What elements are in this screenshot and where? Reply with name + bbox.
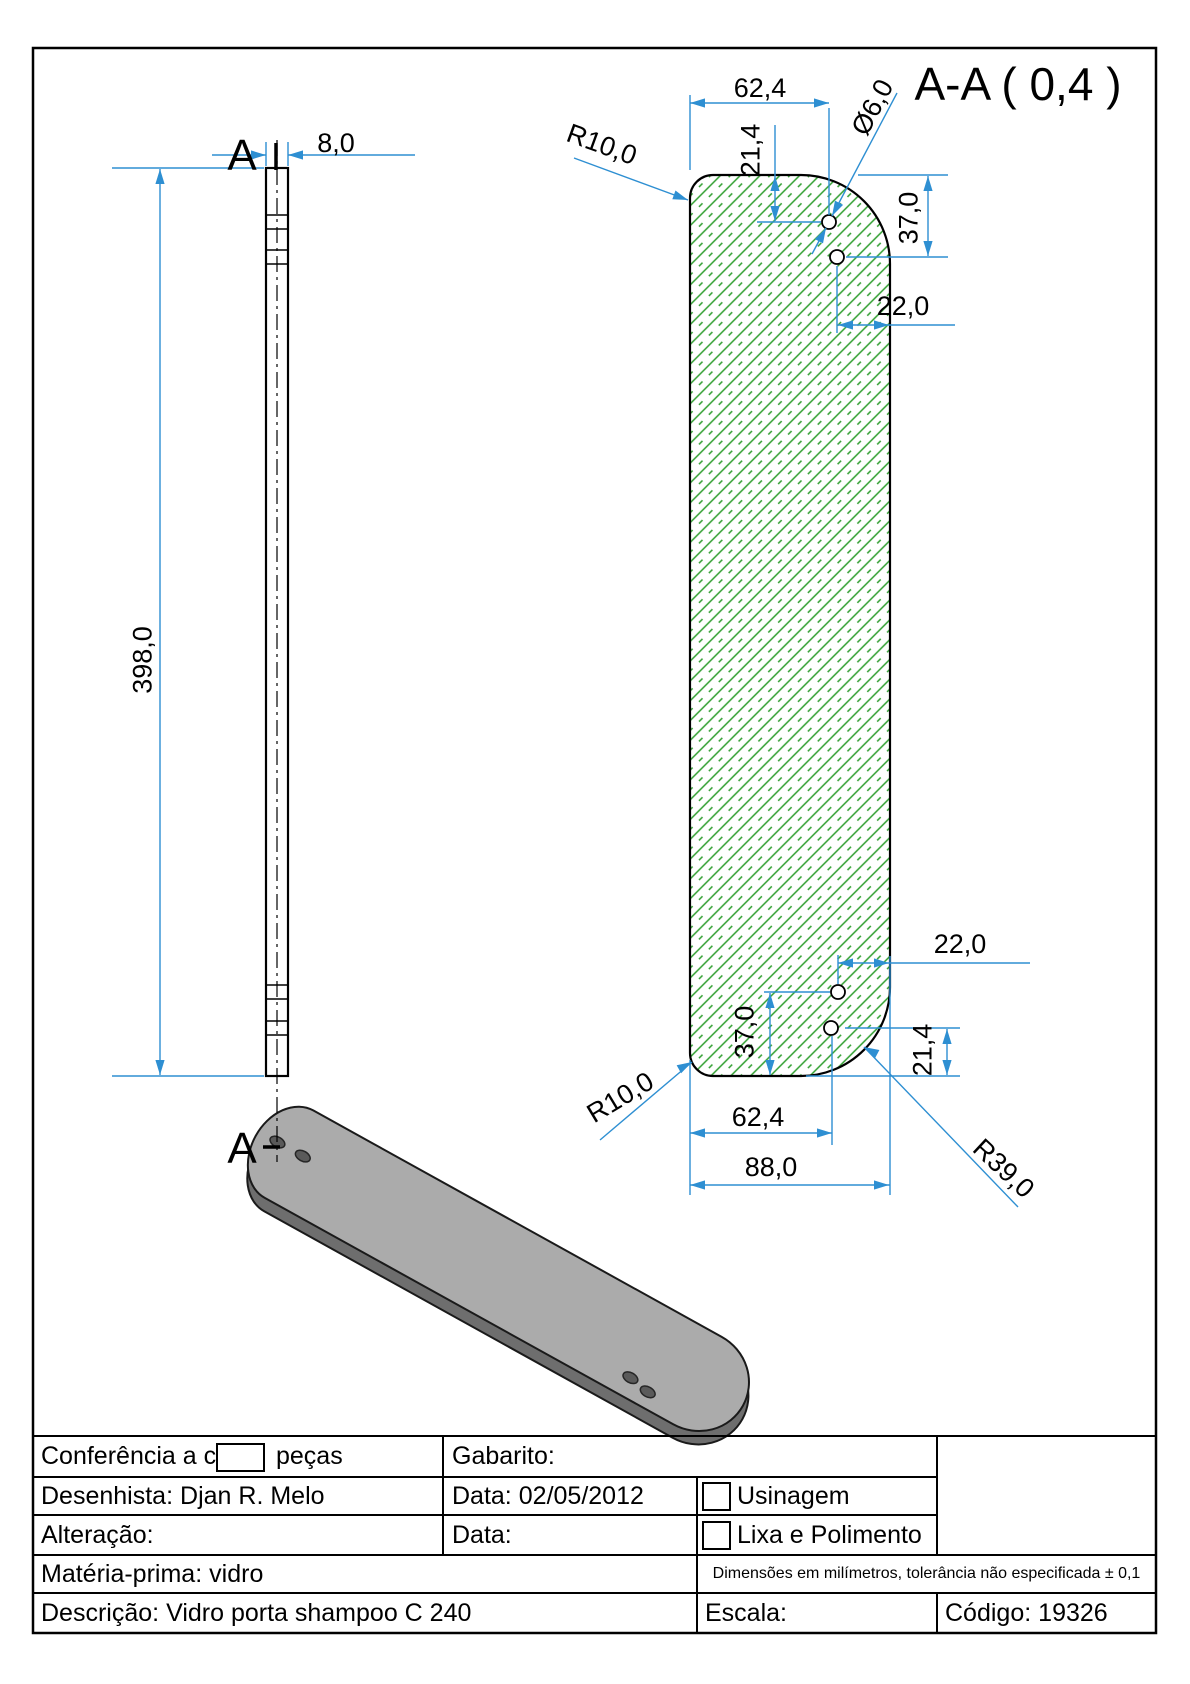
conferencia-count-box[interactable] — [216, 1443, 265, 1472]
dim-side-thickness: 8,0 — [317, 128, 355, 158]
descricao-wrap: Descrição: Vidro porta shampoo C 240 — [41, 1593, 471, 1633]
drawing-sheet: A-A ( 0,4 ) A A 8,0 398,0 62,4 21,4 Ø6,0… — [0, 0, 1190, 1684]
codigo-value: 19326 — [1038, 1599, 1108, 1628]
dim-plate-width: 88,0 — [745, 1152, 798, 1182]
dim-top-corner-radius: R10,0 — [563, 118, 641, 171]
dim-top-hole2-y: 37,0 — [893, 192, 923, 245]
data-label: Data: — [452, 1482, 512, 1511]
dim-side-length: 398,0 — [127, 626, 157, 694]
dim-hole-diameter: Ø6,0 — [845, 74, 899, 140]
section-view — [690, 175, 890, 1076]
materia-value: vidro — [209, 1560, 263, 1589]
data-value: 02/05/2012 — [519, 1482, 644, 1511]
descricao-label: Descrição: — [41, 1599, 159, 1628]
dim-bottom-corner-radius: R10,0 — [582, 1066, 659, 1129]
dim-bottom-hole-y: 21,4 — [907, 1024, 937, 1077]
dim-bottom-hole2-x: 22,0 — [934, 929, 987, 959]
plate-top-face — [232, 1092, 768, 1450]
escala-wrap: Escala: — [705, 1593, 787, 1633]
drawing-canvas: A-A ( 0,4 ) A A 8,0 398,0 62,4 21,4 Ø6,0… — [0, 0, 1190, 1684]
dim-top-hole2-x: 22,0 — [877, 291, 930, 321]
alteracao-label: Alteração: — [41, 1521, 154, 1550]
alteracao-wrap: Alteração: — [41, 1515, 154, 1555]
descricao-value: Vidro porta shampoo C 240 — [166, 1599, 471, 1628]
lixa-wrap: Lixa e Polimento — [737, 1515, 922, 1555]
materia-wrap: Matéria-prima: vidro — [41, 1555, 263, 1593]
desenhista-wrap: Desenhista: Djan R. Melo — [41, 1477, 325, 1515]
dim-top-hole-x: 62,4 — [734, 73, 787, 103]
data-wrap: Data: 02/05/2012 — [452, 1477, 644, 1515]
usinagem-label: Usinagem — [737, 1482, 850, 1511]
data2-label: Data: — [452, 1521, 512, 1550]
codigo-label: Código: — [945, 1599, 1031, 1628]
dim-bottom-right-corner-radius: R39,0 — [967, 1133, 1040, 1204]
section-view-title: A-A ( 0,4 ) — [914, 58, 1121, 110]
section-label-bottom: A — [227, 1124, 257, 1173]
desenhista-label: Desenhista: — [41, 1482, 173, 1511]
escala-label: Escala: — [705, 1599, 787, 1628]
lixa-checkbox[interactable] — [702, 1521, 731, 1550]
gabarito-wrap: Gabarito: — [452, 1436, 555, 1477]
dim-bottom-hole-x: 62,4 — [732, 1102, 785, 1132]
dimension-lines — [112, 93, 1030, 1207]
usinagem-checkbox[interactable] — [702, 1482, 731, 1511]
dim-top-hole-y: 21,4 — [735, 124, 765, 177]
data2-wrap: Data: — [452, 1515, 512, 1555]
pecas-wrap: peças — [276, 1436, 343, 1477]
desenhista-value: Djan R. Melo — [180, 1482, 325, 1511]
section-outline — [690, 175, 890, 1076]
side-view — [263, 140, 288, 1162]
gabarito-label: Gabarito: — [452, 1442, 555, 1471]
tolerancia-note: Dimensões em milímetros, tolerância não … — [697, 1555, 1156, 1593]
pecas-label: peças — [276, 1442, 343, 1471]
materia-label: Matéria-prima: — [41, 1560, 202, 1589]
section-label-top: A — [227, 131, 257, 180]
usinagem-wrap: Usinagem — [737, 1477, 850, 1515]
codigo-wrap: Código: 19326 — [945, 1593, 1108, 1633]
lixa-label: Lixa e Polimento — [737, 1521, 922, 1550]
dim-bottom-hole2-y: 37,0 — [729, 1006, 759, 1059]
